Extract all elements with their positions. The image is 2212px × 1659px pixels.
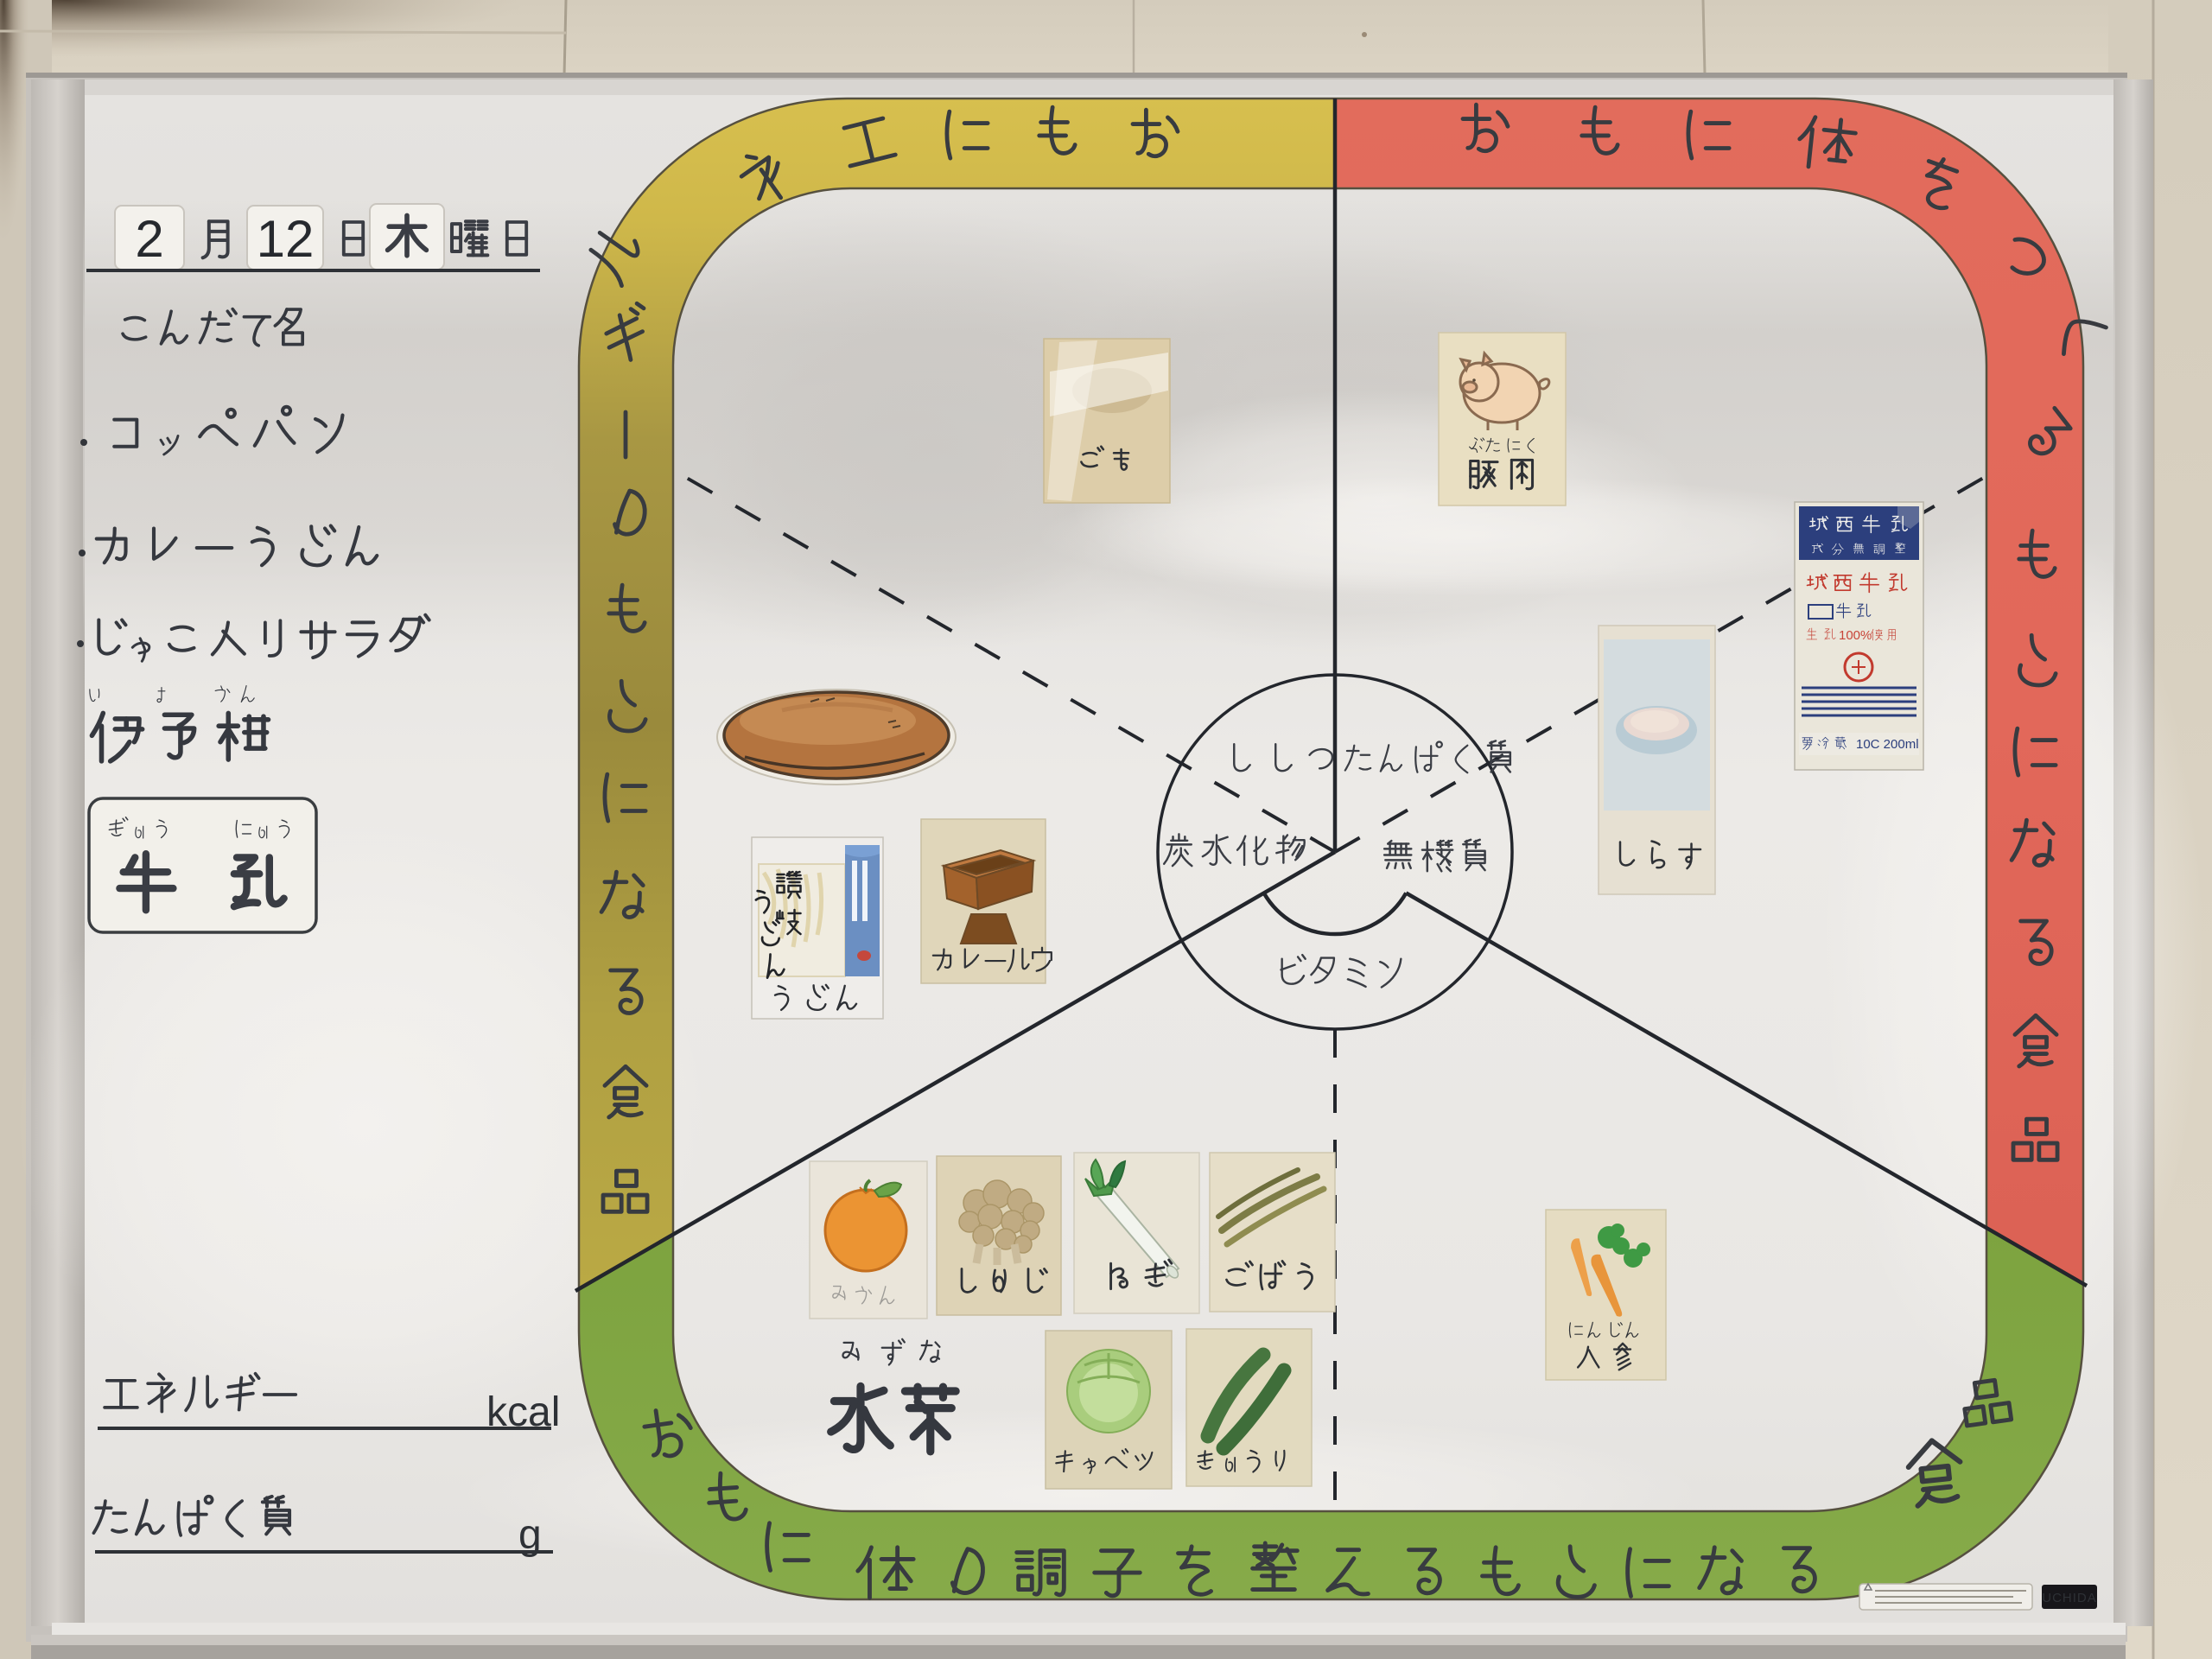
svg-text:10C 200ml: 10C 200ml [1856,737,1919,752]
svg-text:100%: 100% [1839,628,1872,643]
svg-text:UCHIDA: UCHIDA [2042,1591,2097,1605]
svg-text:2: 2 [135,210,163,268]
svg-text:12: 12 [257,210,315,268]
